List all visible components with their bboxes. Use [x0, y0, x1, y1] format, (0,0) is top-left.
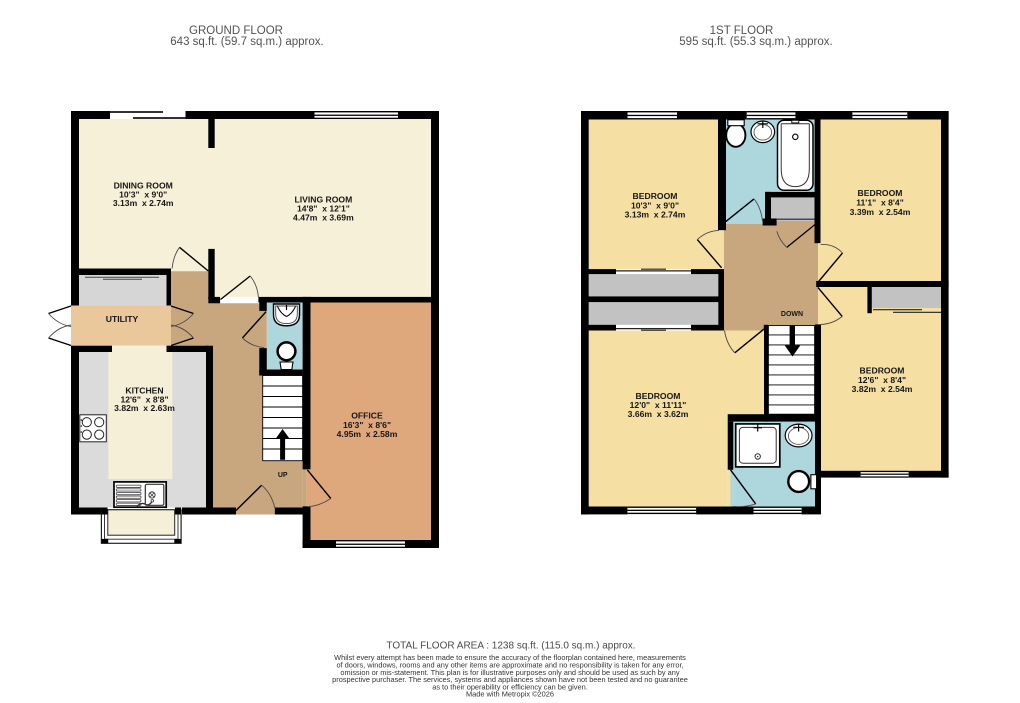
- svg-text:4.47m x 3.69m: 4.47m x 3.69m: [293, 212, 354, 222]
- svg-text:3.13m x 2.74m: 3.13m x 2.74m: [625, 210, 686, 220]
- svg-text:4.95m x 2.58m: 4.95m x 2.58m: [337, 429, 398, 439]
- svg-text:3.13m x 2.74m: 3.13m x 2.74m: [113, 198, 174, 208]
- svg-text:TOTAL FLOOR AREA : 1238 sq.ft.: TOTAL FLOOR AREA : 1238 sq.ft. (115.0 sq…: [386, 641, 635, 652]
- svg-text:595 sq.ft. (55.3 sq.m.) approx: 595 sq.ft. (55.3 sq.m.) approx.: [679, 36, 832, 48]
- svg-text:3.82m x 2.54m: 3.82m x 2.54m: [852, 384, 913, 394]
- svg-text:Made with Metropix ©2026: Made with Metropix ©2026: [466, 690, 554, 699]
- svg-text:BEDROOM: BEDROOM: [858, 188, 903, 198]
- svg-text:643 sq.ft. (59.7 sq.m.) approx: 643 sq.ft. (59.7 sq.m.) approx.: [170, 36, 323, 48]
- svg-text:11'1" x 8'4": 11'1" x 8'4": [856, 197, 904, 207]
- svg-text:3.82m x 2.63m: 3.82m x 2.63m: [114, 403, 175, 413]
- svg-text:3.66m x 3.62m: 3.66m x 3.62m: [628, 409, 689, 419]
- svg-text:UP: UP: [278, 472, 288, 479]
- svg-text:DOWN: DOWN: [781, 311, 803, 318]
- svg-text:3.39m x 2.54m: 3.39m x 2.54m: [850, 207, 911, 217]
- svg-text:UTILITY: UTILITY: [106, 314, 139, 324]
